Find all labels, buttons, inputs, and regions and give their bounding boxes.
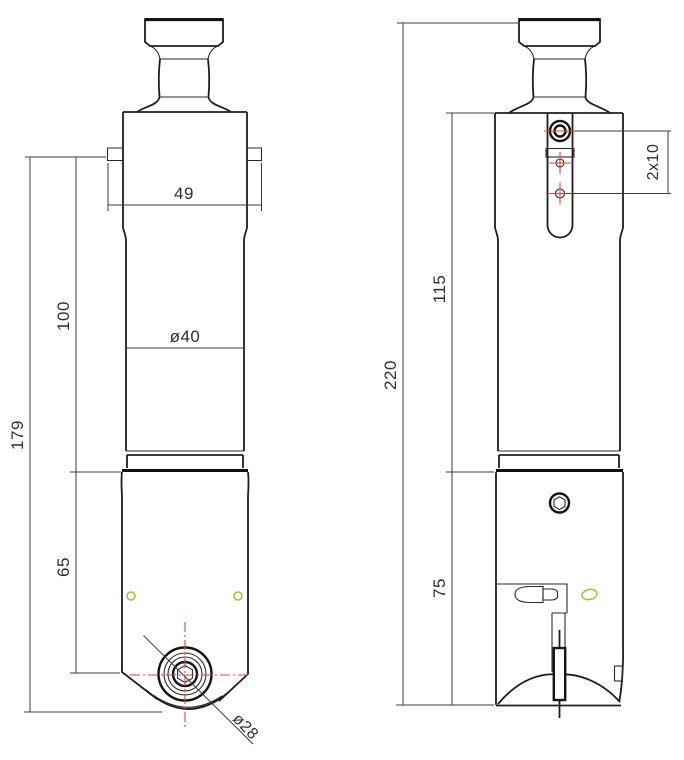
dim-75-label: 75 (430, 578, 449, 598)
dim-179-label: 179 (8, 420, 27, 450)
dim-100-label: 100 (54, 301, 73, 331)
dim-flange-width: 49 (108, 163, 262, 211)
drawing-canvas: 49 ø40 179 100 65 ø28 (0, 0, 684, 760)
dim-65-label: 65 (54, 557, 73, 577)
dim-side-head: 75 (430, 472, 452, 705)
shank-side (495, 113, 623, 468)
engineering-drawing-sheet: 49 ø40 179 100 65 ø28 (0, 0, 684, 760)
dim-dia40-label: ø40 (170, 327, 201, 346)
dim-front-overall: 179 (8, 157, 30, 712)
dim-49-label: 49 (174, 184, 194, 203)
cutter-head-side (496, 471, 623, 719)
dim-hole-spacing: 2x10 (566, 131, 671, 194)
key-slot (546, 113, 574, 238)
dim-115-label: 115 (430, 275, 449, 304)
dim-dia28-label: ø28 (229, 711, 261, 744)
dim-shank-diameter: ø40 (126, 327, 244, 348)
hex-socket-side (554, 497, 565, 510)
drive-key-right (247, 148, 262, 161)
front-view (108, 19, 262, 730)
dim-side-overall: 220 (381, 23, 403, 705)
dim-cutting-diameter: ø28 (144, 636, 262, 745)
coolant-hole-side (581, 588, 598, 601)
centerlines-front (130, 622, 251, 730)
dim-head-height: 65 (54, 472, 76, 673)
dim-shank-length: 100 (54, 157, 76, 472)
drive-key-left (108, 148, 124, 161)
pull-stud-front (137, 19, 231, 112)
dim-220-label: 220 (381, 360, 400, 390)
pull-stud-side (509, 19, 610, 113)
coolant-holes-front (127, 592, 242, 600)
cutter-head-front (121, 471, 248, 710)
shank-front (108, 112, 262, 468)
dim-side-upper: 115 (430, 113, 452, 472)
insert-screw-front (159, 648, 212, 701)
clamp-wedge (515, 587, 558, 603)
dim-2x10-label: 2x10 (645, 144, 662, 181)
